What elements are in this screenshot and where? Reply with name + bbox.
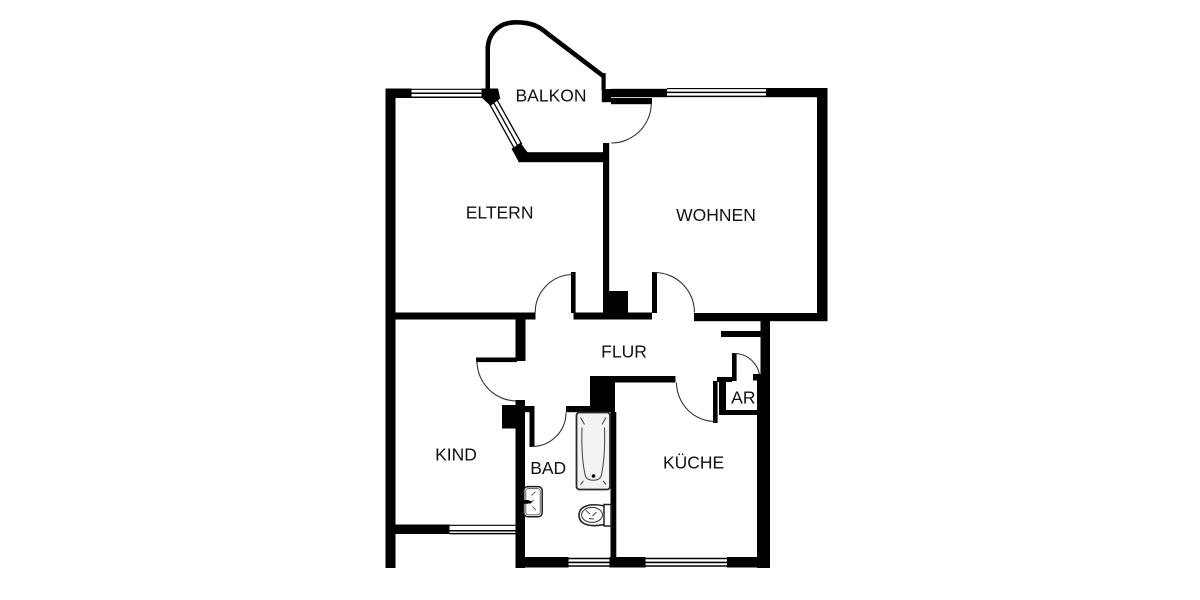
svg-text:KIND: KIND bbox=[435, 444, 477, 464]
svg-text:ELTERN: ELTERN bbox=[466, 202, 534, 222]
svg-text:KÜCHE: KÜCHE bbox=[663, 452, 724, 472]
svg-text:BALKON: BALKON bbox=[516, 85, 587, 105]
svg-text:FLUR: FLUR bbox=[601, 341, 647, 361]
svg-text:AR: AR bbox=[731, 388, 755, 408]
svg-text:WOHNEN: WOHNEN bbox=[676, 205, 756, 225]
svg-text:BAD: BAD bbox=[530, 458, 566, 478]
